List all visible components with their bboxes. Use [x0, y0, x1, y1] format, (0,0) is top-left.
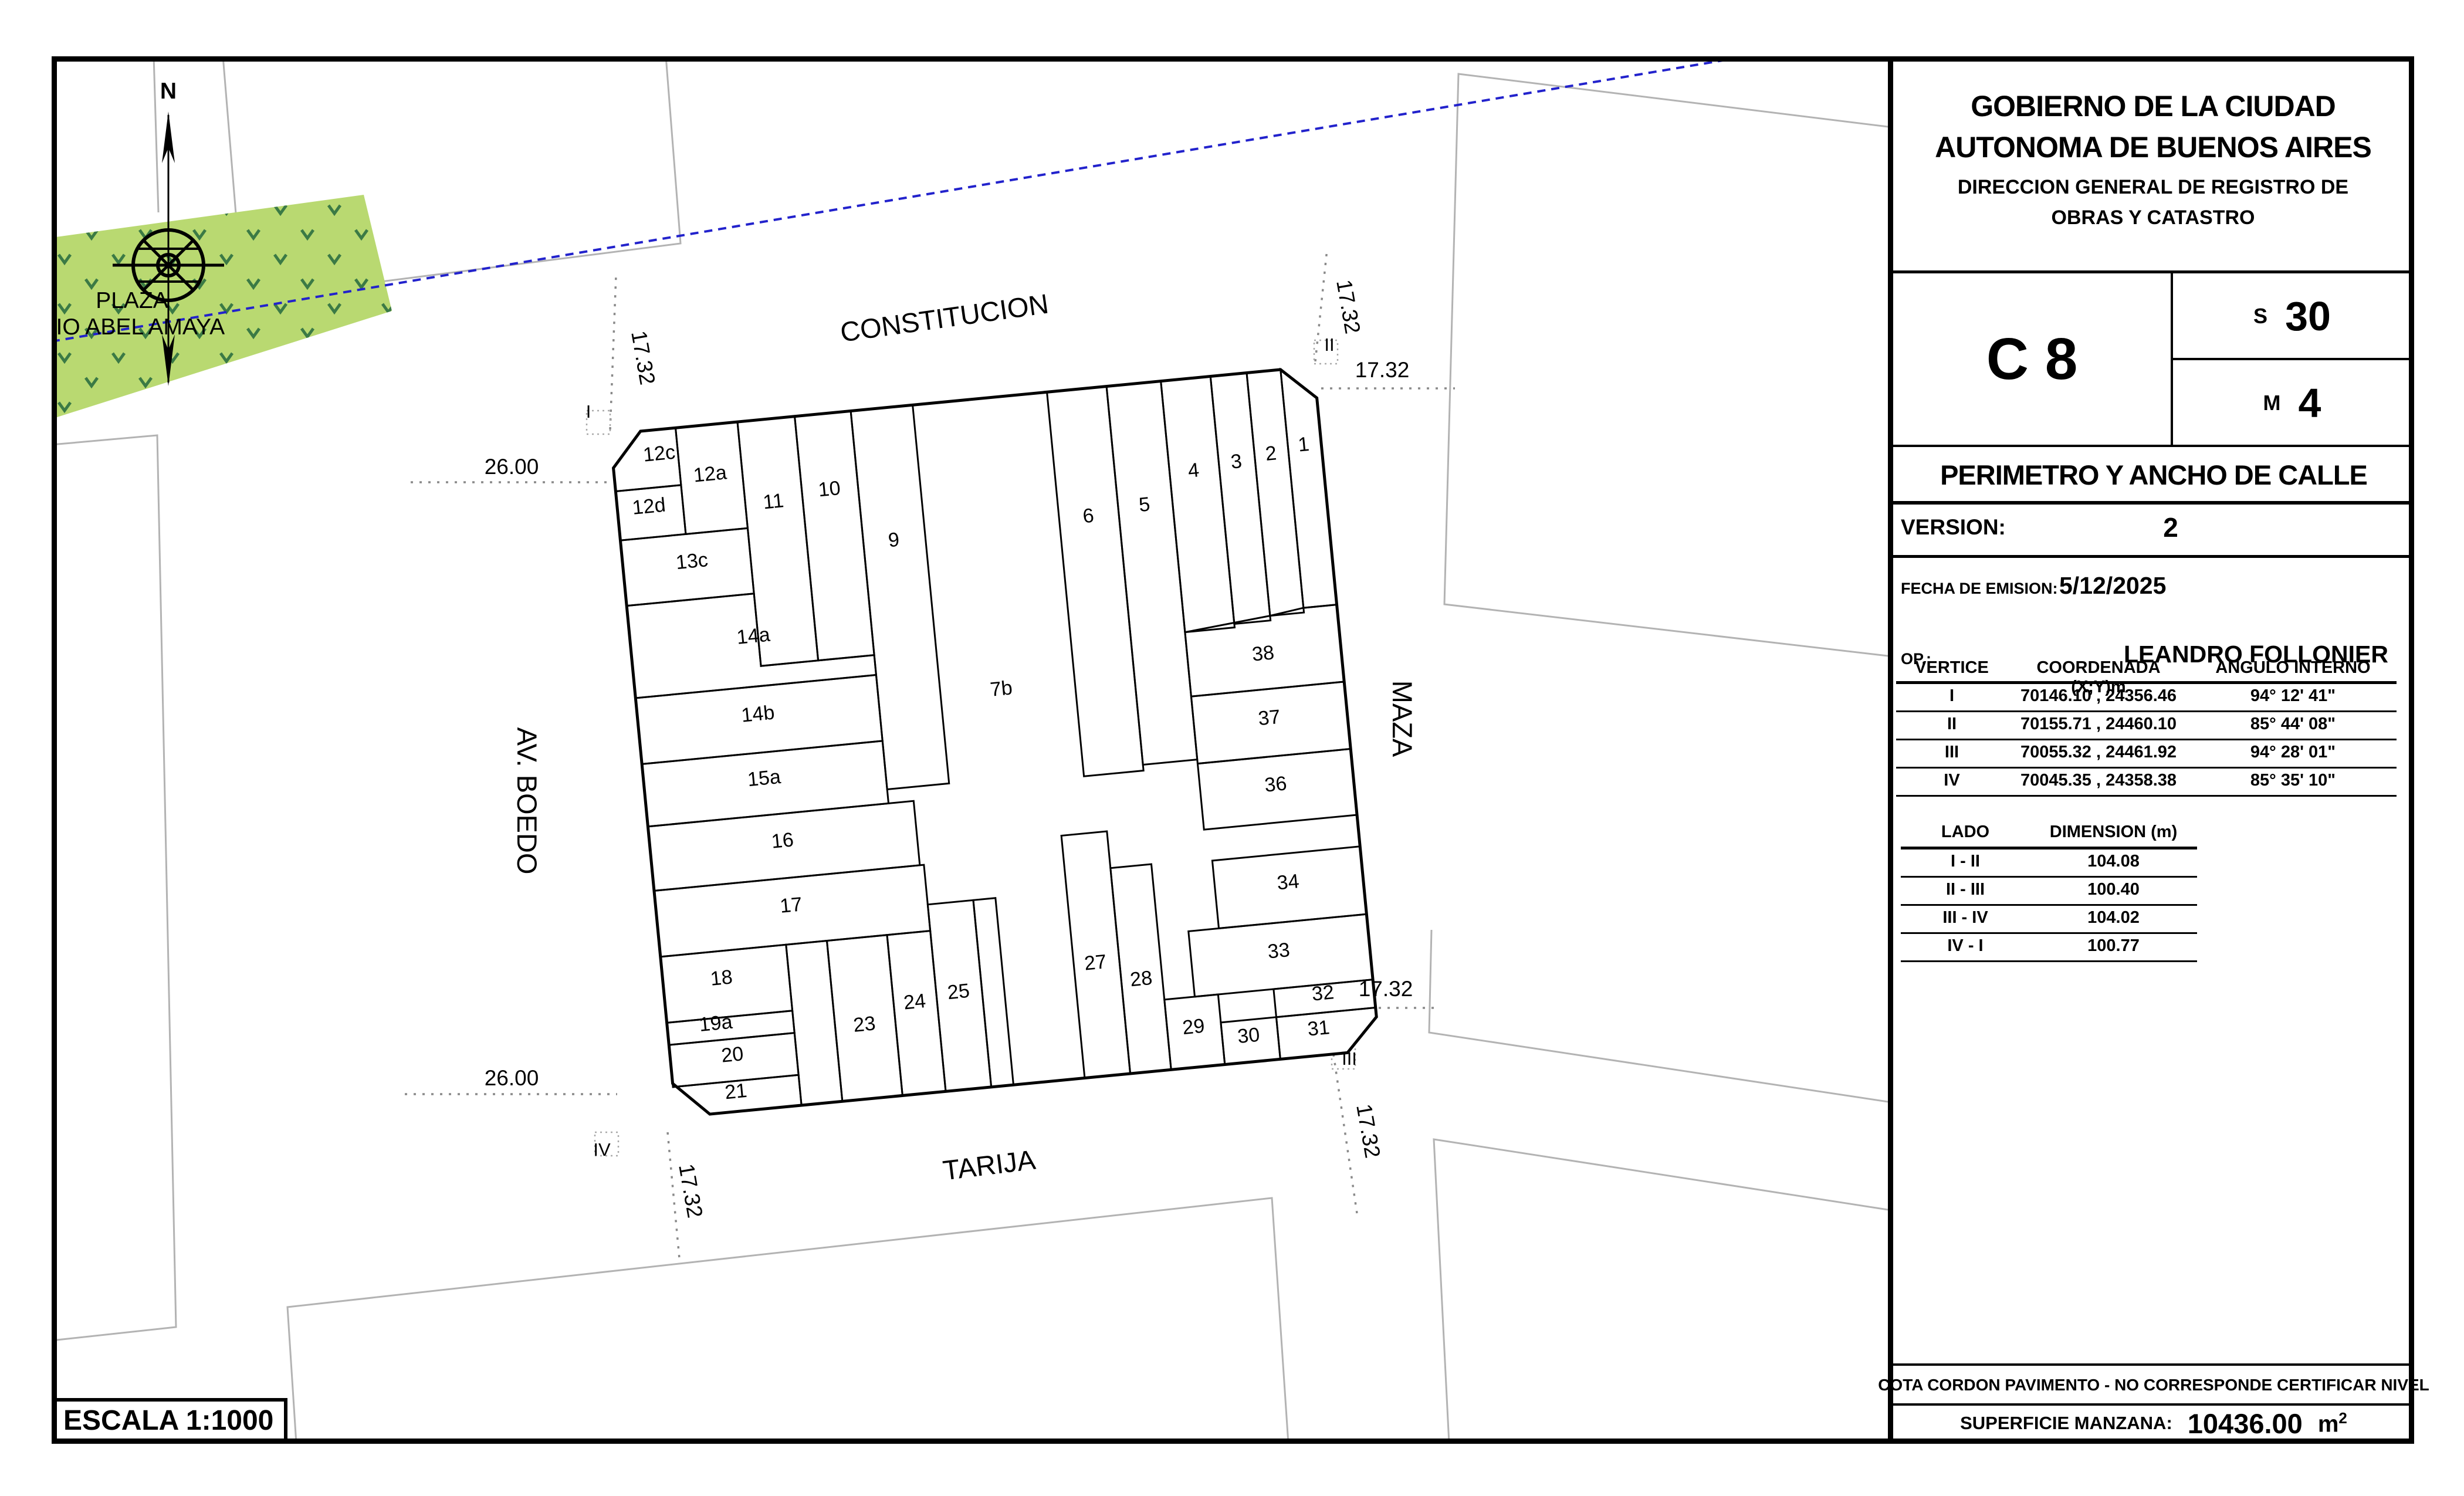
table-row: III70055.32 , 24461.9294° 28' 01": [1896, 743, 2397, 762]
table-cell: II - III: [1901, 880, 2030, 899]
table-cell: 94° 28' 01": [2189, 743, 2397, 762]
table-cell: III: [1896, 743, 2008, 762]
rule: [1901, 876, 2197, 878]
table-cell: 100.77: [2030, 936, 2197, 956]
org-title-line2: AUTONOMA DE BUENOS AIRES: [1895, 130, 2411, 164]
sheet-title: PERIMETRO Y ANCHO DE CALLE: [1893, 447, 2414, 502]
table-cell: 100.40: [2030, 880, 2197, 899]
table-row: II70155.71 , 24460.1085° 44' 08": [1896, 715, 2397, 734]
org-title-line1: GOBIERNO DE LA CIUDAD: [1895, 89, 2411, 123]
table-row: IV70045.35 , 24358.3885° 35' 10": [1896, 771, 2397, 790]
lado-table-header: LADO DIMENSION (m): [1901, 823, 2197, 842]
superficie-unit: m2: [2318, 1409, 2347, 1437]
manzana-value: 4: [2299, 380, 2321, 427]
org-subtitle-line2: OBRAS Y CATASTRO: [1895, 207, 2411, 229]
seccion-label: S: [2253, 304, 2267, 329]
col-header: DIMENSION (m): [2030, 823, 2197, 842]
superficie-row: SUPERFICIE MANZANA: 10436.00 m2: [1893, 1404, 2414, 1442]
table-cell: 85° 44' 08": [2189, 715, 2397, 734]
table-cell: 104.08: [2030, 852, 2197, 871]
rule: [1901, 960, 2197, 962]
rule: [1901, 904, 2197, 906]
superficie-value: 10436.00: [2188, 1407, 2303, 1440]
table-row: III - IV104.02: [1901, 908, 2197, 928]
table-cell: 70155.71 , 24460.10: [2008, 715, 2189, 734]
table-cell: IV - I: [1901, 936, 2030, 956]
rule: [1896, 795, 2397, 797]
org-subtitle-line1: DIRECCION GENERAL DE REGISTRO DE: [1895, 176, 2411, 199]
table-cell: IV: [1896, 771, 2008, 790]
rule: [1896, 767, 2397, 769]
rule: [1888, 555, 2414, 558]
table-cell: III - IV: [1901, 908, 2030, 928]
version-value: 2: [2135, 512, 2206, 543]
superficie-label: SUPERFICIE MANZANA:: [1960, 1413, 2172, 1434]
table-cell: 70146.10 , 24356.46: [2008, 686, 2189, 706]
version-label: VERSION:: [1901, 515, 2006, 540]
table-row: IV - I100.77: [1901, 936, 2197, 956]
table-cell: 70045.35 , 24358.38: [2008, 771, 2189, 790]
seccion-value: 30: [2285, 293, 2331, 340]
table-cell: II: [1896, 715, 2008, 734]
table-cell: I - II: [1901, 852, 2030, 871]
rule: [1888, 501, 2414, 505]
fecha-emision-value: 5/12/2025: [2059, 572, 2166, 600]
col-header: LADO: [1901, 823, 2030, 842]
table-row: II - III100.40: [1901, 880, 2197, 899]
manzana-cell: M 4: [2171, 360, 2414, 446]
rule: [1896, 739, 2397, 740]
circunscripcion-cell: C 8: [1893, 273, 2171, 446]
escala-label: ESCALA 1:1000: [63, 1404, 273, 1437]
table-row: I - II104.08: [1901, 852, 2197, 871]
table-cell: 94° 12' 41": [2189, 686, 2397, 706]
table-cell: I: [1896, 686, 2008, 706]
rule: [1901, 932, 2197, 934]
fecha-emision-label: FECHA DE EMISION:: [1901, 580, 2058, 598]
cota-note: COTA CORDON PAVIMENTO - NO CORRESPONDE C…: [1893, 1367, 2414, 1403]
cadastral-sheet: { "document": { "header_line1": "GOBIERN…: [0, 0, 2464, 1496]
panel-divider: [1888, 56, 1893, 1444]
rule: [1896, 710, 2397, 712]
table-cell: 104.02: [2030, 908, 2197, 928]
seccion-cell: S 30: [2171, 273, 2414, 359]
escala-box: ESCALA 1:1000: [52, 1398, 287, 1443]
rule: [1888, 1363, 2414, 1366]
table-row: I70146.10 , 24356.4694° 12' 41": [1896, 686, 2397, 706]
table-cell: 85° 35' 10": [2189, 771, 2397, 790]
table-cell: 70055.32 , 24461.92: [2008, 743, 2189, 762]
manzana-label: M: [2263, 391, 2281, 415]
